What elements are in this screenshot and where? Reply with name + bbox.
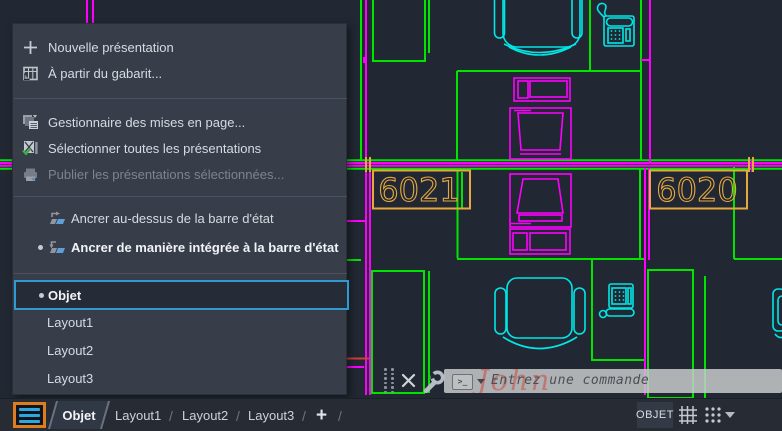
- page-setup-icon: [21, 114, 39, 132]
- plus-icon: [21, 39, 39, 57]
- dock-above-icon: [48, 210, 66, 228]
- layout-menu-button[interactable]: [13, 402, 46, 428]
- autocad-window: 6021 6020 John >_ Entrez une commande: [0, 0, 782, 431]
- tab-objet[interactable]: Objet: [52, 401, 106, 429]
- menu-item-dock-inline-statusbar[interactable]: Ancrer de manière intégrée à la barre d'…: [13, 234, 346, 261]
- menu-item-page-setup-manager[interactable]: Gestionnaire des mises en page...: [13, 109, 346, 136]
- menu-separator: [14, 273, 347, 274]
- menu-separator: [14, 98, 347, 99]
- publish-printer-icon: [21, 166, 39, 184]
- tab-layout2[interactable]: Layout2: [182, 399, 228, 431]
- room-label-text: 6021: [378, 171, 459, 209]
- command-input-bar[interactable]: John >_ Entrez une commande: [444, 369, 782, 393]
- selected-bullet: [39, 293, 44, 298]
- chair-lower-icon: [495, 278, 585, 349]
- tab-layout3[interactable]: Layout3: [248, 399, 294, 431]
- selected-bullet: [38, 245, 43, 250]
- snap-grid-icon[interactable]: [702, 404, 724, 426]
- menu-item-publish-layouts: Publier les présentations sélectionnées.…: [13, 161, 346, 188]
- menu-separator: [14, 196, 347, 197]
- menu-item-from-template[interactable]: À partir du gabarit...: [13, 60, 346, 87]
- wrench-icon[interactable]: [422, 368, 445, 393]
- menu-item-layout-objet[interactable]: Objet: [14, 280, 349, 310]
- hamburger-icon: [19, 408, 40, 411]
- menu-item-dock-above-statusbar[interactable]: Ancrer au-dessus de la barre d'état: [13, 205, 346, 232]
- phone-partial-right-icon: [773, 289, 782, 338]
- menu-item-layout1[interactable]: Layout1: [13, 309, 346, 336]
- room-label-text: 6020: [656, 171, 737, 209]
- command-prompt-icon[interactable]: >_: [452, 374, 473, 390]
- chevron-down-icon[interactable]: [725, 412, 735, 418]
- grid-display-icon[interactable]: [677, 404, 699, 426]
- menu-item-layout3[interactable]: Layout3: [13, 365, 346, 392]
- tab-separator: /: [236, 399, 240, 431]
- layout-tabs-bar: Objet Layout1 / Layout2 / Layout3 / + / …: [0, 398, 782, 431]
- layout-context-menu: Nouvelle présentation À partir du gabari…: [12, 23, 347, 395]
- command-placeholder: Entrez une commande: [491, 373, 649, 388]
- template-icon: [21, 65, 39, 83]
- phone-lower-icon: [600, 284, 635, 318]
- select-all-icon: [21, 140, 39, 158]
- menu-item-new-layout[interactable]: Nouvelle présentation: [13, 34, 346, 61]
- command-history-chevron-icon[interactable]: [477, 379, 485, 384]
- dock-inline-icon: [48, 239, 66, 257]
- tab-separator: /: [338, 399, 342, 431]
- close-icon[interactable]: [401, 373, 416, 388]
- chair-upper-icon: [495, 0, 583, 55]
- tab-layout1[interactable]: Layout1: [115, 399, 161, 431]
- menu-item-select-all-layouts[interactable]: Sélectionner toutes les présentations: [13, 135, 346, 162]
- tab-separator: /: [169, 399, 173, 431]
- command-palette-tools: [384, 365, 445, 395]
- tab-separator: /: [302, 399, 306, 431]
- command-drag-handle[interactable]: [384, 368, 395, 392]
- menu-item-layout2[interactable]: Layout2: [13, 337, 346, 364]
- new-layout-button[interactable]: +: [316, 399, 327, 431]
- paper-space-button[interactable]: OBJET: [637, 402, 673, 428]
